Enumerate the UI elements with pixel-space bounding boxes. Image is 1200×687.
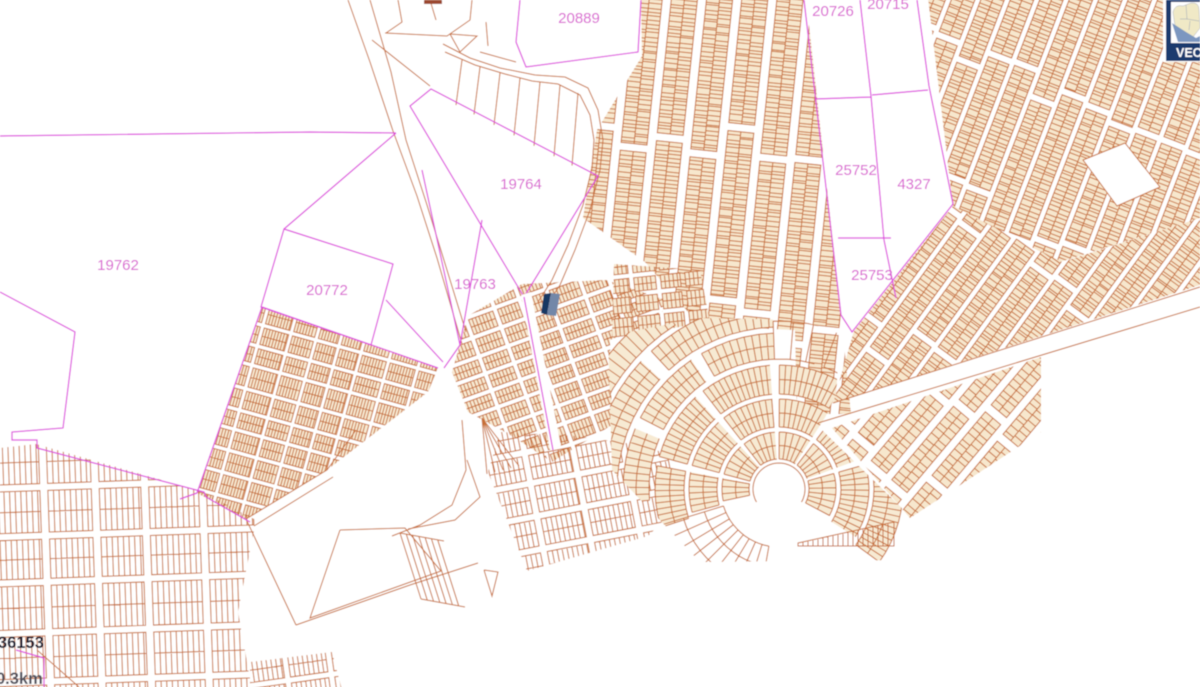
svg-text:20715: 20715: [867, 0, 909, 13]
svg-text:0.3km: 0.3km: [0, 670, 43, 687]
svg-text:VEC: VEC: [1176, 46, 1200, 60]
svg-text:25753: 25753: [851, 267, 893, 284]
svg-text:19764: 19764: [500, 176, 542, 193]
svg-text:20726: 20726: [812, 3, 854, 20]
svg-text:19762: 19762: [97, 257, 139, 274]
svg-text:25752: 25752: [835, 162, 877, 179]
svg-text:36153: 36153: [0, 634, 44, 652]
svg-text:20772: 20772: [306, 282, 348, 299]
svg-text:20889: 20889: [558, 10, 600, 27]
svg-text:4327: 4327: [897, 176, 930, 193]
svg-text:19763: 19763: [454, 276, 496, 293]
